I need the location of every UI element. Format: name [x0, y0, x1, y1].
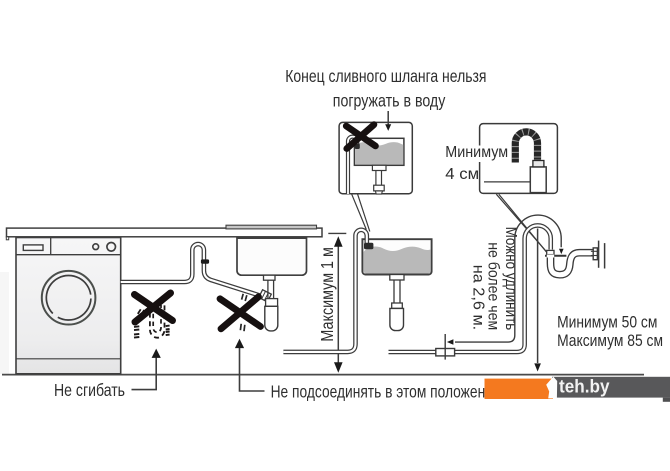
svg-text:погружать в воду: погружать в воду [333, 90, 446, 110]
svg-text:Не подсоединять в этом положен: Не подсоединять в этом положении [271, 382, 501, 402]
svg-text:Максимум 1 м: Максимум 1 м [317, 247, 337, 342]
svg-text:4 см: 4 см [445, 166, 479, 183]
svg-text:Минимум 50 см: Минимум 50 см [557, 312, 657, 331]
svg-text:teh.by: teh.by [559, 376, 610, 397]
svg-text:Конец сливного шланга нельзя: Конец сливного шланга нельзя [285, 66, 486, 86]
svg-text:Не сгибать: Не сгибать [54, 380, 125, 400]
svg-text:Можно удлинить: Можно удлинить [502, 227, 519, 331]
svg-text:Минимум: Минимум [445, 144, 508, 161]
svg-text:Максимум 85 см: Максимум 85 см [557, 331, 663, 350]
svg-text:на 2,6 м.: на 2,6 м. [469, 265, 486, 331]
